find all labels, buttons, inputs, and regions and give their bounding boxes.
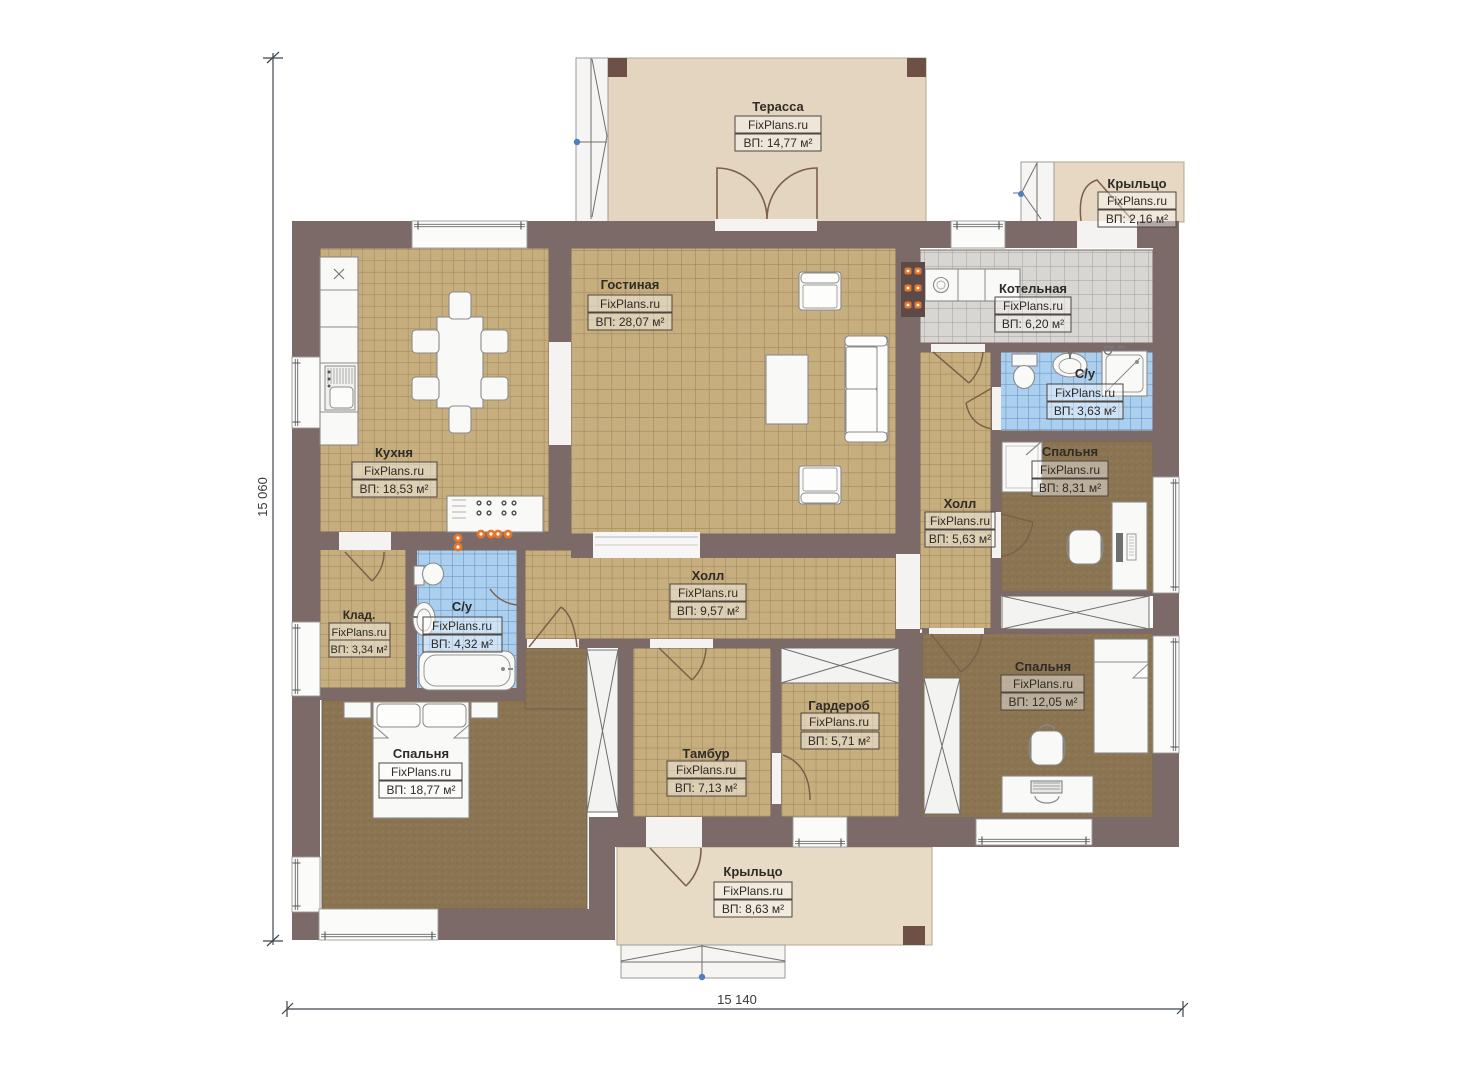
svg-text:FixPlans.ru: FixPlans.ru bbox=[391, 765, 451, 779]
svg-text:ВП: 18,53 м²: ВП: 18,53 м² bbox=[360, 482, 429, 496]
svg-text:С/у: С/у bbox=[452, 599, 473, 614]
svg-text:ВП: 6,20 м²: ВП: 6,20 м² bbox=[1002, 317, 1064, 331]
svg-text:Гардероб: Гардероб bbox=[808, 698, 869, 713]
svg-text:FixPlans.ru: FixPlans.ru bbox=[331, 627, 386, 639]
svg-text:ВП: 3,63 м²: ВП: 3,63 м² bbox=[1054, 404, 1116, 418]
svg-text:Гостиная: Гостиная bbox=[601, 277, 660, 292]
svg-text:ВП: 2,16 м²: ВП: 2,16 м² bbox=[1106, 212, 1168, 226]
svg-text:Спальня: Спальня bbox=[1042, 444, 1098, 459]
svg-text:FixPlans.ru: FixPlans.ru bbox=[1040, 463, 1100, 477]
svg-text:ВП: 7,13 м²: ВП: 7,13 м² bbox=[675, 781, 737, 795]
svg-text:ВП: 14,77 м²: ВП: 14,77 м² bbox=[744, 136, 813, 150]
svg-text:15 060: 15 060 bbox=[255, 477, 270, 517]
svg-text:Спальня: Спальня bbox=[393, 746, 449, 761]
svg-text:FixPlans.ru: FixPlans.ru bbox=[1055, 386, 1115, 400]
svg-text:Клад.: Клад. bbox=[343, 608, 376, 622]
svg-text:FixPlans.ru: FixPlans.ru bbox=[1107, 194, 1167, 208]
svg-text:Спальня: Спальня bbox=[1015, 659, 1071, 674]
svg-text:FixPlans.ru: FixPlans.ru bbox=[1013, 677, 1073, 691]
svg-text:FixPlans.ru: FixPlans.ru bbox=[432, 619, 492, 633]
svg-text:ВП: 5,71 м²: ВП: 5,71 м² bbox=[808, 734, 870, 748]
svg-text:Котельная: Котельная bbox=[999, 281, 1067, 296]
svg-text:FixPlans.ru: FixPlans.ru bbox=[930, 514, 990, 528]
svg-text:Крыльцо: Крыльцо bbox=[723, 864, 782, 879]
svg-text:FixPlans.ru: FixPlans.ru bbox=[723, 884, 783, 898]
svg-text:FixPlans.ru: FixPlans.ru bbox=[676, 763, 736, 777]
svg-text:FixPlans.ru: FixPlans.ru bbox=[748, 118, 808, 132]
svg-text:FixPlans.ru: FixPlans.ru bbox=[1003, 299, 1063, 313]
svg-text:Тамбур: Тамбур bbox=[682, 746, 729, 761]
svg-text:ВП: 28,07 м²: ВП: 28,07 м² bbox=[596, 315, 665, 329]
svg-text:Кухня: Кухня bbox=[375, 445, 413, 460]
svg-text:ВП: 9,57 м²: ВП: 9,57 м² bbox=[677, 604, 739, 618]
svg-text:Терасса: Терасса bbox=[752, 99, 804, 114]
svg-text:15 140: 15 140 bbox=[717, 992, 757, 1007]
svg-text:Холл: Холл bbox=[944, 496, 977, 511]
svg-text:FixPlans.ru: FixPlans.ru bbox=[678, 586, 738, 600]
svg-text:FixPlans.ru: FixPlans.ru bbox=[809, 715, 869, 729]
svg-text:ВП: 8,63 м²: ВП: 8,63 м² bbox=[722, 902, 784, 916]
svg-text:ВП: 18,77 м²: ВП: 18,77 м² bbox=[387, 783, 456, 797]
svg-text:Холл: Холл bbox=[692, 568, 725, 583]
svg-text:FixPlans.ru: FixPlans.ru bbox=[600, 297, 660, 311]
svg-text:FixPlans.ru: FixPlans.ru bbox=[364, 464, 424, 478]
svg-text:С/у: С/у bbox=[1075, 366, 1096, 381]
svg-text:ВП: 3,34 м²: ВП: 3,34 м² bbox=[330, 644, 387, 656]
svg-text:ВП: 8,31 м²: ВП: 8,31 м² bbox=[1039, 481, 1101, 495]
svg-text:ВП: 4,32 м²: ВП: 4,32 м² bbox=[431, 637, 493, 651]
svg-text:Крыльцо: Крыльцо bbox=[1107, 176, 1166, 191]
svg-text:ВП: 12,05 м²: ВП: 12,05 м² bbox=[1009, 695, 1078, 709]
svg-text:ВП: 5,63 м²: ВП: 5,63 м² bbox=[929, 532, 991, 546]
